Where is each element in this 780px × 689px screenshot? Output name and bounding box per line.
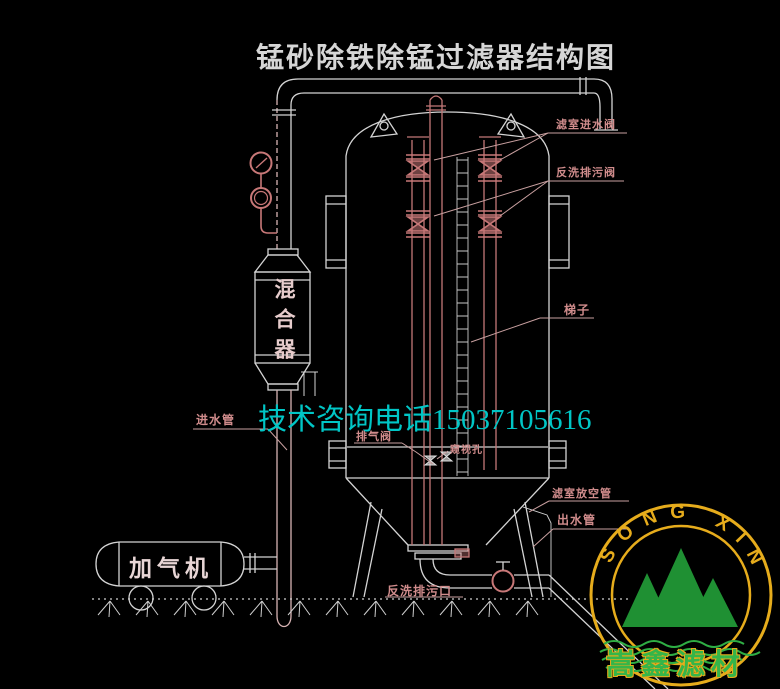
wheel-icon xyxy=(192,586,216,610)
top-inlet-piping xyxy=(272,77,618,249)
backwash-valve-icon xyxy=(478,211,502,237)
label-exhaust-valve: 排气阀 xyxy=(356,428,392,444)
label-ladder: 梯子 xyxy=(564,301,590,318)
label-chamber-vent-pipe: 滤室放空管 xyxy=(552,485,612,501)
label-inlet-pipe: 进水管 xyxy=(196,411,235,428)
drain-valve-icon xyxy=(493,571,514,592)
label-aerator: 加气机 xyxy=(129,549,213,583)
pipe-u-bend xyxy=(277,616,291,627)
label-filter-inlet-valve: 滤室进水阀 xyxy=(556,116,616,132)
ground-line xyxy=(92,599,628,617)
pressure-gauge-icon xyxy=(251,153,278,234)
mountain-icon xyxy=(645,548,717,627)
right-leg xyxy=(514,502,543,597)
filter-inlet-valve-icon xyxy=(406,155,430,181)
left-lower-nozzle xyxy=(329,441,346,468)
right-upper-nozzle xyxy=(549,196,569,268)
vent-pipe-line xyxy=(523,507,551,597)
logo-company-name: 嵩鑫滤材 xyxy=(606,641,746,683)
side-stub xyxy=(301,372,318,396)
left-leg xyxy=(353,502,382,597)
filter-inlet-valve-icon xyxy=(478,155,502,181)
nozzle-icon xyxy=(425,456,436,465)
backwash-valve-icon xyxy=(406,211,430,237)
label-sight-hole: 窥视孔 xyxy=(450,441,483,456)
watermark-phone-text: 技术咨询电话15037105616 xyxy=(258,396,592,438)
label-backwash-drain-valve: 反洗排污阀 xyxy=(556,164,616,180)
label-outlet-pipe: 出水管 xyxy=(557,511,596,528)
main-vessel xyxy=(301,112,569,597)
label-backwash-drain-outlet: 反洗排污口 xyxy=(387,582,452,599)
page-title: 锰砂除铁除锰过滤器结构图 xyxy=(256,36,616,76)
wheel-icon xyxy=(129,586,153,610)
diagram-stage: SONG XIN 锰砂除铁除锰过滤器结构图 技术咨询电话15037105616 … xyxy=(0,0,780,689)
riser-cap xyxy=(430,96,442,100)
left-upper-nozzle xyxy=(326,196,346,268)
right-lower-nozzle xyxy=(549,441,566,468)
label-mixer: 混合器 xyxy=(268,278,298,368)
